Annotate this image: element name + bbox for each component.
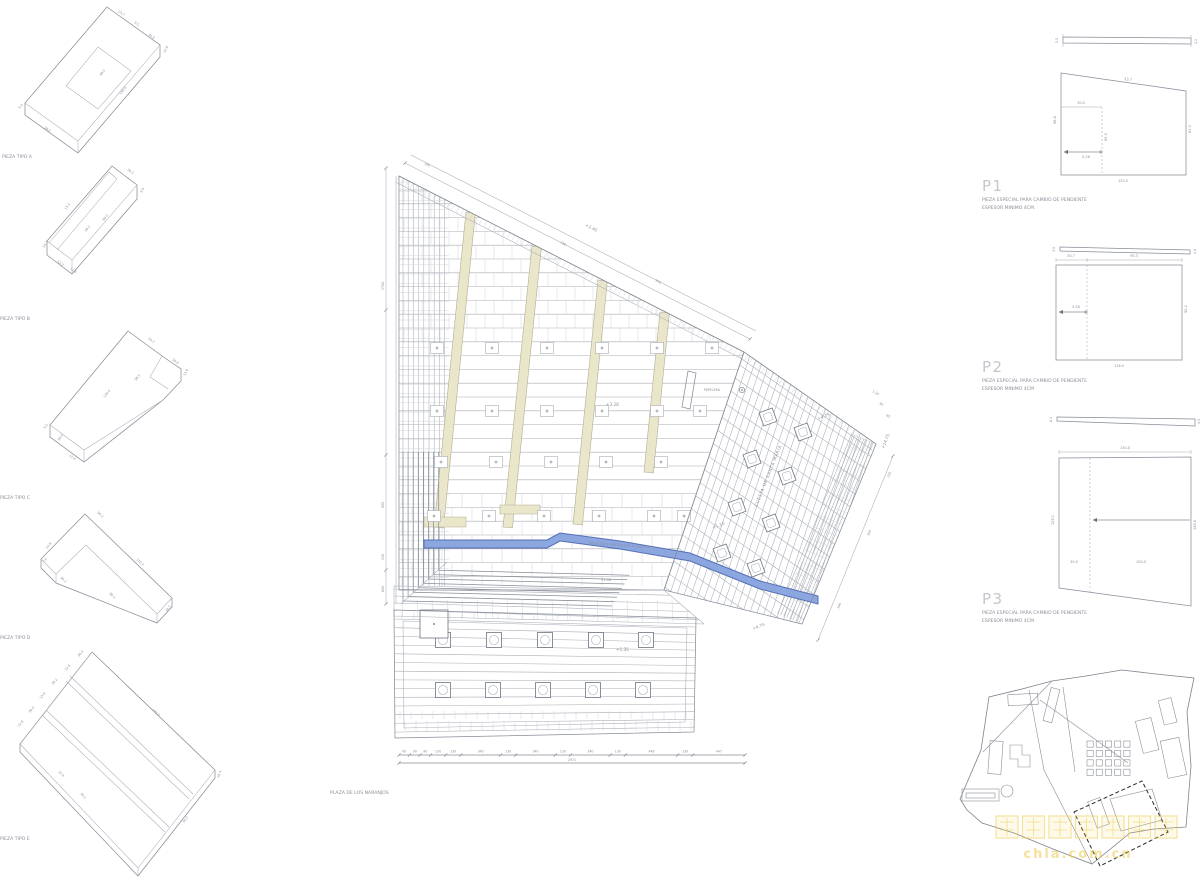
- dim-label: 81.4: [1188, 124, 1192, 133]
- level-label: +4.75: [752, 622, 766, 631]
- p3-plan-shape: [1059, 457, 1191, 606]
- tree-pits: [420, 408, 812, 697]
- tree-pit-frame: [436, 683, 451, 698]
- keyplan-building: [1105, 750, 1111, 756]
- piece-e-label: PIEZA TIPO E: [0, 836, 30, 842]
- band-tick: [488, 223, 491, 229]
- stair-line: [781, 435, 855, 615]
- course: [395, 727, 695, 732]
- dim-label: 1700: [381, 282, 385, 290]
- plan-dimension-lines: [386, 155, 893, 640]
- keyplan-building: [1115, 760, 1121, 766]
- keyplan-building: [1096, 750, 1102, 756]
- course: [395, 663, 695, 666]
- dim-total: 2971: [568, 758, 576, 762]
- keyplan-building: [1087, 741, 1093, 747]
- papelera-symbol: [739, 387, 744, 392]
- band-tick: [512, 235, 515, 241]
- dim-value: 90: [413, 750, 417, 754]
- grid-line: [705, 470, 857, 576]
- dim-label: 5.5: [1055, 38, 1059, 43]
- dim-label: 33.7: [1124, 77, 1132, 82]
- band-tick: [451, 204, 454, 210]
- band-tick: [655, 308, 658, 314]
- detail-id: P3: [982, 590, 1004, 608]
- dim-value: 130: [505, 750, 511, 754]
- keyplan-building: [1105, 760, 1111, 766]
- joint: [627, 600, 628, 622]
- dim-value: 90: [423, 750, 427, 754]
- band-tick: [646, 304, 649, 310]
- well-dot: [433, 623, 435, 625]
- piece-a-outline: [25, 7, 160, 153]
- band-tick: [567, 263, 570, 269]
- piece-e-outline: [20, 652, 215, 876]
- p2-profile: [1060, 247, 1190, 254]
- piece-d-label: PIEZA TIPO D: [0, 635, 31, 641]
- dim: 12.8: [68, 454, 76, 461]
- tree-pit: [713, 544, 731, 562]
- keyplan-building: [1115, 769, 1121, 775]
- keyplan-building: [1087, 769, 1093, 775]
- level-label: +1.40: [585, 222, 599, 232]
- dim-label: 180: [424, 161, 431, 167]
- detail-note: ESPESOR MINIMO 4CM.: [982, 205, 1035, 211]
- dim: 36.0: [84, 225, 92, 233]
- piece-b-axon: 36.3 9.0 13.3 53.7 36.0 89.0 12.8 52.3: [42, 166, 146, 274]
- dim: 9.0: [43, 423, 49, 429]
- joint: [567, 600, 568, 622]
- piece-b-outline: [47, 166, 137, 274]
- dim-label: 95.3: [1130, 254, 1138, 258]
- band-tick: [761, 367, 765, 373]
- piece-a-edges: [25, 45, 160, 153]
- dim: 50.2: [96, 511, 104, 519]
- p1-profile: [1063, 37, 1191, 44]
- tree-pit: [759, 408, 777, 426]
- joint: [552, 600, 553, 622]
- grid-line: [731, 391, 883, 497]
- dim-tick: [403, 161, 406, 164]
- course: [395, 654, 695, 658]
- grid-line: [672, 364, 761, 629]
- band-tick: [632, 297, 635, 303]
- grid-line: [766, 429, 855, 694]
- joint: [597, 600, 598, 622]
- keyplan-building: [1160, 737, 1186, 778]
- tree-pit-frame: [794, 423, 812, 441]
- dim-value: 130: [450, 750, 456, 754]
- band-tick: [456, 207, 459, 213]
- band-tick: [734, 349, 737, 355]
- p2-plan-shape: [1056, 265, 1182, 360]
- tree-pit-frame: [759, 408, 777, 426]
- dim-tick: [891, 454, 894, 457]
- keyplan-building: [988, 741, 1003, 775]
- dim-label: 1.10: [872, 389, 880, 396]
- band-tick: [744, 355, 748, 361]
- beige-strip: [503, 246, 541, 528]
- band-tick: [549, 254, 552, 260]
- grid-line: [665, 587, 817, 693]
- band-tick: [623, 292, 626, 298]
- dim-label: 680: [381, 586, 385, 592]
- piece-c-label: PIEZA TIPO C: [0, 495, 30, 501]
- watermark-text: chla.com.cn: [1023, 847, 1132, 862]
- band-tick: [428, 193, 431, 199]
- plan-title: PLAZA DE LOS NARANJOS: [330, 790, 389, 796]
- detail-note: PIEZA ESPECIAL PARA CAMBIO DE PENDIENTE: [982, 610, 1087, 616]
- piece-a-axon: 23.7 9.5 30.8 12.8 48.0 139.0 9.0 36.0: [18, 7, 170, 153]
- keyplan-block-grid: [1087, 741, 1130, 775]
- band-tick: [498, 228, 501, 234]
- keyplan-building: [1115, 741, 1121, 747]
- dim: 13.8: [39, 692, 47, 700]
- grid-line: [735, 378, 887, 484]
- dim: 50.2: [147, 337, 155, 344]
- band-tick: [808, 400, 812, 406]
- dim: 9.0: [18, 103, 24, 109]
- dim: 12.8: [64, 664, 72, 672]
- band-tick: [609, 285, 612, 291]
- dim: 36.0: [43, 126, 51, 133]
- dim-value: 130: [615, 750, 621, 754]
- band-tick: [572, 266, 575, 272]
- dim-label: 90.2: [1184, 305, 1188, 313]
- piece-e-steps: [42, 676, 193, 832]
- dim: 48.0: [99, 69, 107, 77]
- dim: 7.0: [42, 557, 48, 563]
- beige-strip: [644, 312, 669, 473]
- dim-value: 340: [478, 750, 484, 754]
- dim: 36.0: [28, 706, 36, 714]
- tree-pit-frame: [536, 683, 551, 698]
- dim: 13.0: [182, 368, 189, 376]
- dim-label: 126.0: [1114, 364, 1124, 368]
- band-tick: [493, 226, 496, 232]
- cad-canvas: 23.7 9.5 30.8 12.8 48.0 139.0 9.0 36.0 P…: [0, 0, 1200, 877]
- band-tick: [484, 221, 487, 227]
- dim-label: 190: [836, 602, 842, 609]
- band-tick: [729, 346, 732, 352]
- tree-pit-frame: [586, 683, 601, 698]
- tree-pit: [728, 498, 746, 516]
- dim-label: 590: [866, 529, 872, 536]
- dim: 90.0: [182, 816, 190, 824]
- bin-icon-dot: [741, 389, 743, 391]
- detail-note: ESPESOR MINIMO 4CM: [982, 386, 1034, 392]
- dim-label: 125.0: [1118, 179, 1128, 183]
- dim: 23.7: [117, 10, 125, 17]
- joint: [537, 600, 538, 622]
- grid-line: [667, 360, 756, 625]
- dim-label: 85: [886, 413, 892, 418]
- band-tick: [678, 320, 681, 326]
- course: [395, 671, 695, 673]
- grid-line: [713, 443, 865, 549]
- band-tick: [720, 341, 723, 347]
- tree-pit: [794, 423, 812, 441]
- dim-label: 730: [560, 240, 567, 246]
- piece-b-channel: [49, 172, 117, 250]
- p1-plan-shape: [1061, 73, 1186, 175]
- band-tick: [461, 209, 464, 215]
- dim: 28.4: [216, 770, 222, 778]
- piece-c-axon: 50.2 36.8 13.0 139.0 38.3 12.8 36.0 9.0: [43, 331, 190, 462]
- bottom-dimension-string: 909090130130340130340130340130448130447: [384, 161, 894, 764]
- dim-label: 65.0: [1104, 133, 1108, 141]
- tree-pit-frame: [762, 514, 780, 532]
- grid-line: [783, 441, 872, 706]
- keyplan-street: [1063, 687, 1075, 772]
- keyplan-street: [983, 681, 1052, 752]
- dim-value: 340: [587, 750, 593, 754]
- keyplan-building: [1043, 688, 1060, 723]
- detail-note: ESPESOR MINIMO 4CM.: [982, 618, 1035, 624]
- tree-pit-frame: [636, 683, 651, 698]
- band-tick: [563, 261, 566, 267]
- band-tick: [614, 287, 617, 293]
- dim-label: 40: [879, 401, 885, 406]
- dim-label: 146.6: [1193, 520, 1197, 530]
- beige-strip: [573, 280, 607, 525]
- dim: 170.2: [135, 558, 145, 567]
- dim: 89.0: [102, 214, 110, 222]
- level-label: +3.28: [606, 402, 619, 407]
- dim-label: 4.2: [1194, 39, 1198, 44]
- dim-label: 4.0: [1193, 249, 1197, 254]
- watermark-glyphs: [996, 816, 1177, 838]
- band-tick: [410, 183, 413, 189]
- detail-note: PIEZA ESPECIAL PARA CAMBIO DE PENDIENTE: [982, 197, 1087, 203]
- level-label: +1.08: [601, 578, 611, 582]
- detail-p1: 5.5 4.2 30.0 33.7 98.8 81.4 125.0 65.0 5…: [982, 34, 1198, 211]
- piece-d-axon: 50.2 13.8 36.2 7.0 170.2 90.2 36.5: [41, 511, 172, 623]
- tree-pit-frame: [778, 467, 796, 485]
- dim-label: 30.0: [1070, 560, 1078, 564]
- dim: 13.3: [64, 203, 72, 211]
- band-tick: [725, 344, 728, 350]
- keyplan-building: [1087, 760, 1093, 766]
- dim-label: 916: [655, 278, 662, 284]
- keyplan-tower: [1001, 785, 1013, 797]
- band-tick: [795, 391, 799, 397]
- dim-label: 100.0: [1136, 560, 1146, 564]
- bin-label: PAPELERA: [704, 388, 721, 392]
- dim-value: 340: [532, 750, 538, 754]
- band-tick: [842, 423, 846, 429]
- dim: 36.2: [59, 576, 67, 584]
- dim: 36.1: [79, 792, 87, 800]
- dim-value: 130: [435, 750, 441, 754]
- dim-value: 448: [648, 750, 654, 754]
- keyplan-building: [1135, 718, 1159, 754]
- grid-line: [754, 421, 843, 686]
- dim-label: 98.8: [1053, 116, 1057, 124]
- dim: 139.0: [119, 86, 128, 96]
- band-tick: [651, 306, 654, 312]
- piece-c-edges: [50, 356, 168, 462]
- keyplan-building: [1124, 769, 1130, 775]
- grid-line: [731, 405, 820, 670]
- dim: 52.3: [56, 260, 64, 267]
- dim: 9.5: [133, 21, 139, 27]
- dim: 139.0: [103, 389, 112, 399]
- piece-e-axon: 36.0 12.8 36.2 13.8 36.0 12.8 185.0 25.8…: [17, 650, 223, 876]
- joint: [687, 600, 688, 622]
- band-tick: [674, 318, 677, 324]
- keyplan-building: [1124, 750, 1130, 756]
- tree-pit-frame: [589, 633, 604, 648]
- tree-pit-frame: [713, 544, 731, 562]
- detail-id: P1: [982, 177, 1004, 195]
- tree-pit-frame: [743, 450, 761, 468]
- band-tick: [817, 406, 821, 412]
- tree-pit-frame: [728, 498, 746, 516]
- dim: 36.8: [171, 358, 179, 365]
- tree-pit-frame: [486, 683, 501, 698]
- keyplan-building: [966, 793, 995, 798]
- band-tick: [697, 330, 700, 336]
- joint: [612, 600, 613, 622]
- keyplan-building: [1158, 698, 1177, 725]
- dim-value: 130: [560, 750, 566, 754]
- band-tick: [702, 332, 705, 338]
- dim-tick: [748, 337, 751, 340]
- detail-p3: 6.2 4.5 130.0 129.1 146.6 30.0 100.0 P3 …: [982, 417, 1200, 624]
- beige-arm: [500, 505, 540, 514]
- band-tick: [637, 299, 640, 305]
- dim-value: 447: [716, 750, 722, 754]
- dim-label: 129.1: [1051, 515, 1055, 525]
- watermark: chla.com.cn: [996, 816, 1177, 862]
- dim: 25.8: [57, 770, 65, 778]
- drawing-sheet: 23.7 9.5 30.8 12.8 48.0 139.0 9.0 36.0 P…: [0, 0, 1200, 877]
- dim-label: 30.7: [1067, 254, 1075, 258]
- band-tick: [641, 301, 644, 307]
- band-tick: [576, 268, 579, 274]
- dim-value: 130: [682, 750, 688, 754]
- dim-label: 30.0: [1077, 101, 1085, 105]
- dim-label: 6.2: [1049, 417, 1053, 422]
- dim-label: 130.0: [1120, 446, 1130, 450]
- band-tick: [586, 273, 589, 279]
- stair-line: [784, 436, 858, 616]
- band-tick: [553, 256, 556, 262]
- dim: 36.2: [51, 678, 59, 686]
- grid-line: [661, 356, 750, 621]
- dim: 36.0: [77, 650, 85, 658]
- level-label: +14.75: [880, 433, 891, 450]
- dim: 9.0: [139, 187, 145, 193]
- band-tick: [778, 379, 782, 385]
- piece-d-outline: [41, 514, 172, 623]
- dim-label: 230: [886, 471, 892, 478]
- band-tick: [447, 202, 450, 208]
- bench-rect: [682, 371, 696, 409]
- piece-b-label: PIEZA TIPO B: [0, 316, 30, 322]
- tree-pit-frame: [538, 633, 553, 648]
- keyplan-building: [1105, 741, 1111, 747]
- keyplan-building: [962, 789, 999, 801]
- band-tick: [669, 315, 672, 321]
- dim-tick: [816, 638, 819, 641]
- keyplan-building: [1124, 741, 1130, 747]
- dim-value: 90: [402, 750, 406, 754]
- keyplan-building: [1010, 745, 1030, 767]
- grid-line: [678, 368, 767, 633]
- dim: 12.8: [17, 720, 25, 728]
- band-tick: [590, 275, 593, 281]
- band-tick: [405, 181, 408, 187]
- band-tick: [396, 176, 399, 182]
- detail-id: P2: [982, 358, 1004, 376]
- course: [395, 712, 695, 715]
- detail-p2: 3.0 4.0 30.7 95.3 3.26 90.2 126.0 P2 PIE…: [982, 247, 1197, 392]
- level-label: +1.35: [616, 647, 629, 652]
- beige-strip: [434, 212, 475, 528]
- dim: 36.3: [126, 168, 134, 175]
- tree-pit-frame: [639, 633, 654, 648]
- tree-pit: [778, 467, 796, 485]
- dim: 38.3: [134, 374, 142, 382]
- keyplan-building: [1096, 760, 1102, 766]
- dim-label: 5.26: [1082, 155, 1090, 159]
- dim-label: 3.0: [1052, 247, 1056, 252]
- tree-pit: [743, 450, 761, 468]
- band-tick: [516, 237, 519, 243]
- band-tick: [507, 233, 510, 239]
- keyplan-building: [1105, 769, 1111, 775]
- tree-pit-frame: [487, 633, 502, 648]
- band-tick: [706, 334, 709, 340]
- band-tick: [558, 259, 561, 265]
- course: [395, 680, 695, 681]
- dim: 12.8: [162, 45, 169, 53]
- piece-d-edges: [41, 545, 172, 623]
- dim-label: 3.26: [1072, 305, 1080, 309]
- joint: [477, 600, 478, 622]
- keyplan-building: [1096, 769, 1102, 775]
- band-inner: [396, 182, 741, 358]
- band-tick: [419, 188, 422, 194]
- dim: 185.0: [151, 708, 160, 717]
- piece-a-plate: [66, 47, 131, 109]
- band-tick: [618, 289, 621, 295]
- tree-pit: [762, 514, 780, 532]
- band-tick: [479, 219, 482, 225]
- band-tick: [414, 185, 417, 191]
- dim: 90.2: [108, 592, 116, 600]
- grid-line: [713, 393, 802, 658]
- grid-line: [748, 417, 837, 682]
- piece-e-edges: [20, 652, 215, 876]
- keyplan-building: [1087, 750, 1093, 756]
- detail-note: PIEZA ESPECIAL PARA CAMBIO DE PENDIENTE: [982, 378, 1087, 384]
- dim-label: 130: [381, 554, 385, 560]
- piece-c-outline: [50, 331, 181, 462]
- band-tick: [791, 388, 795, 394]
- p3-profile: [1057, 417, 1195, 426]
- band-tick: [830, 414, 834, 420]
- course: [395, 704, 695, 706]
- piece-a-label: PIEZA TIPO A: [2, 154, 33, 160]
- level-label: +1.15: [712, 521, 726, 530]
- band-tick: [544, 252, 547, 258]
- dim-label: 800: [381, 502, 385, 508]
